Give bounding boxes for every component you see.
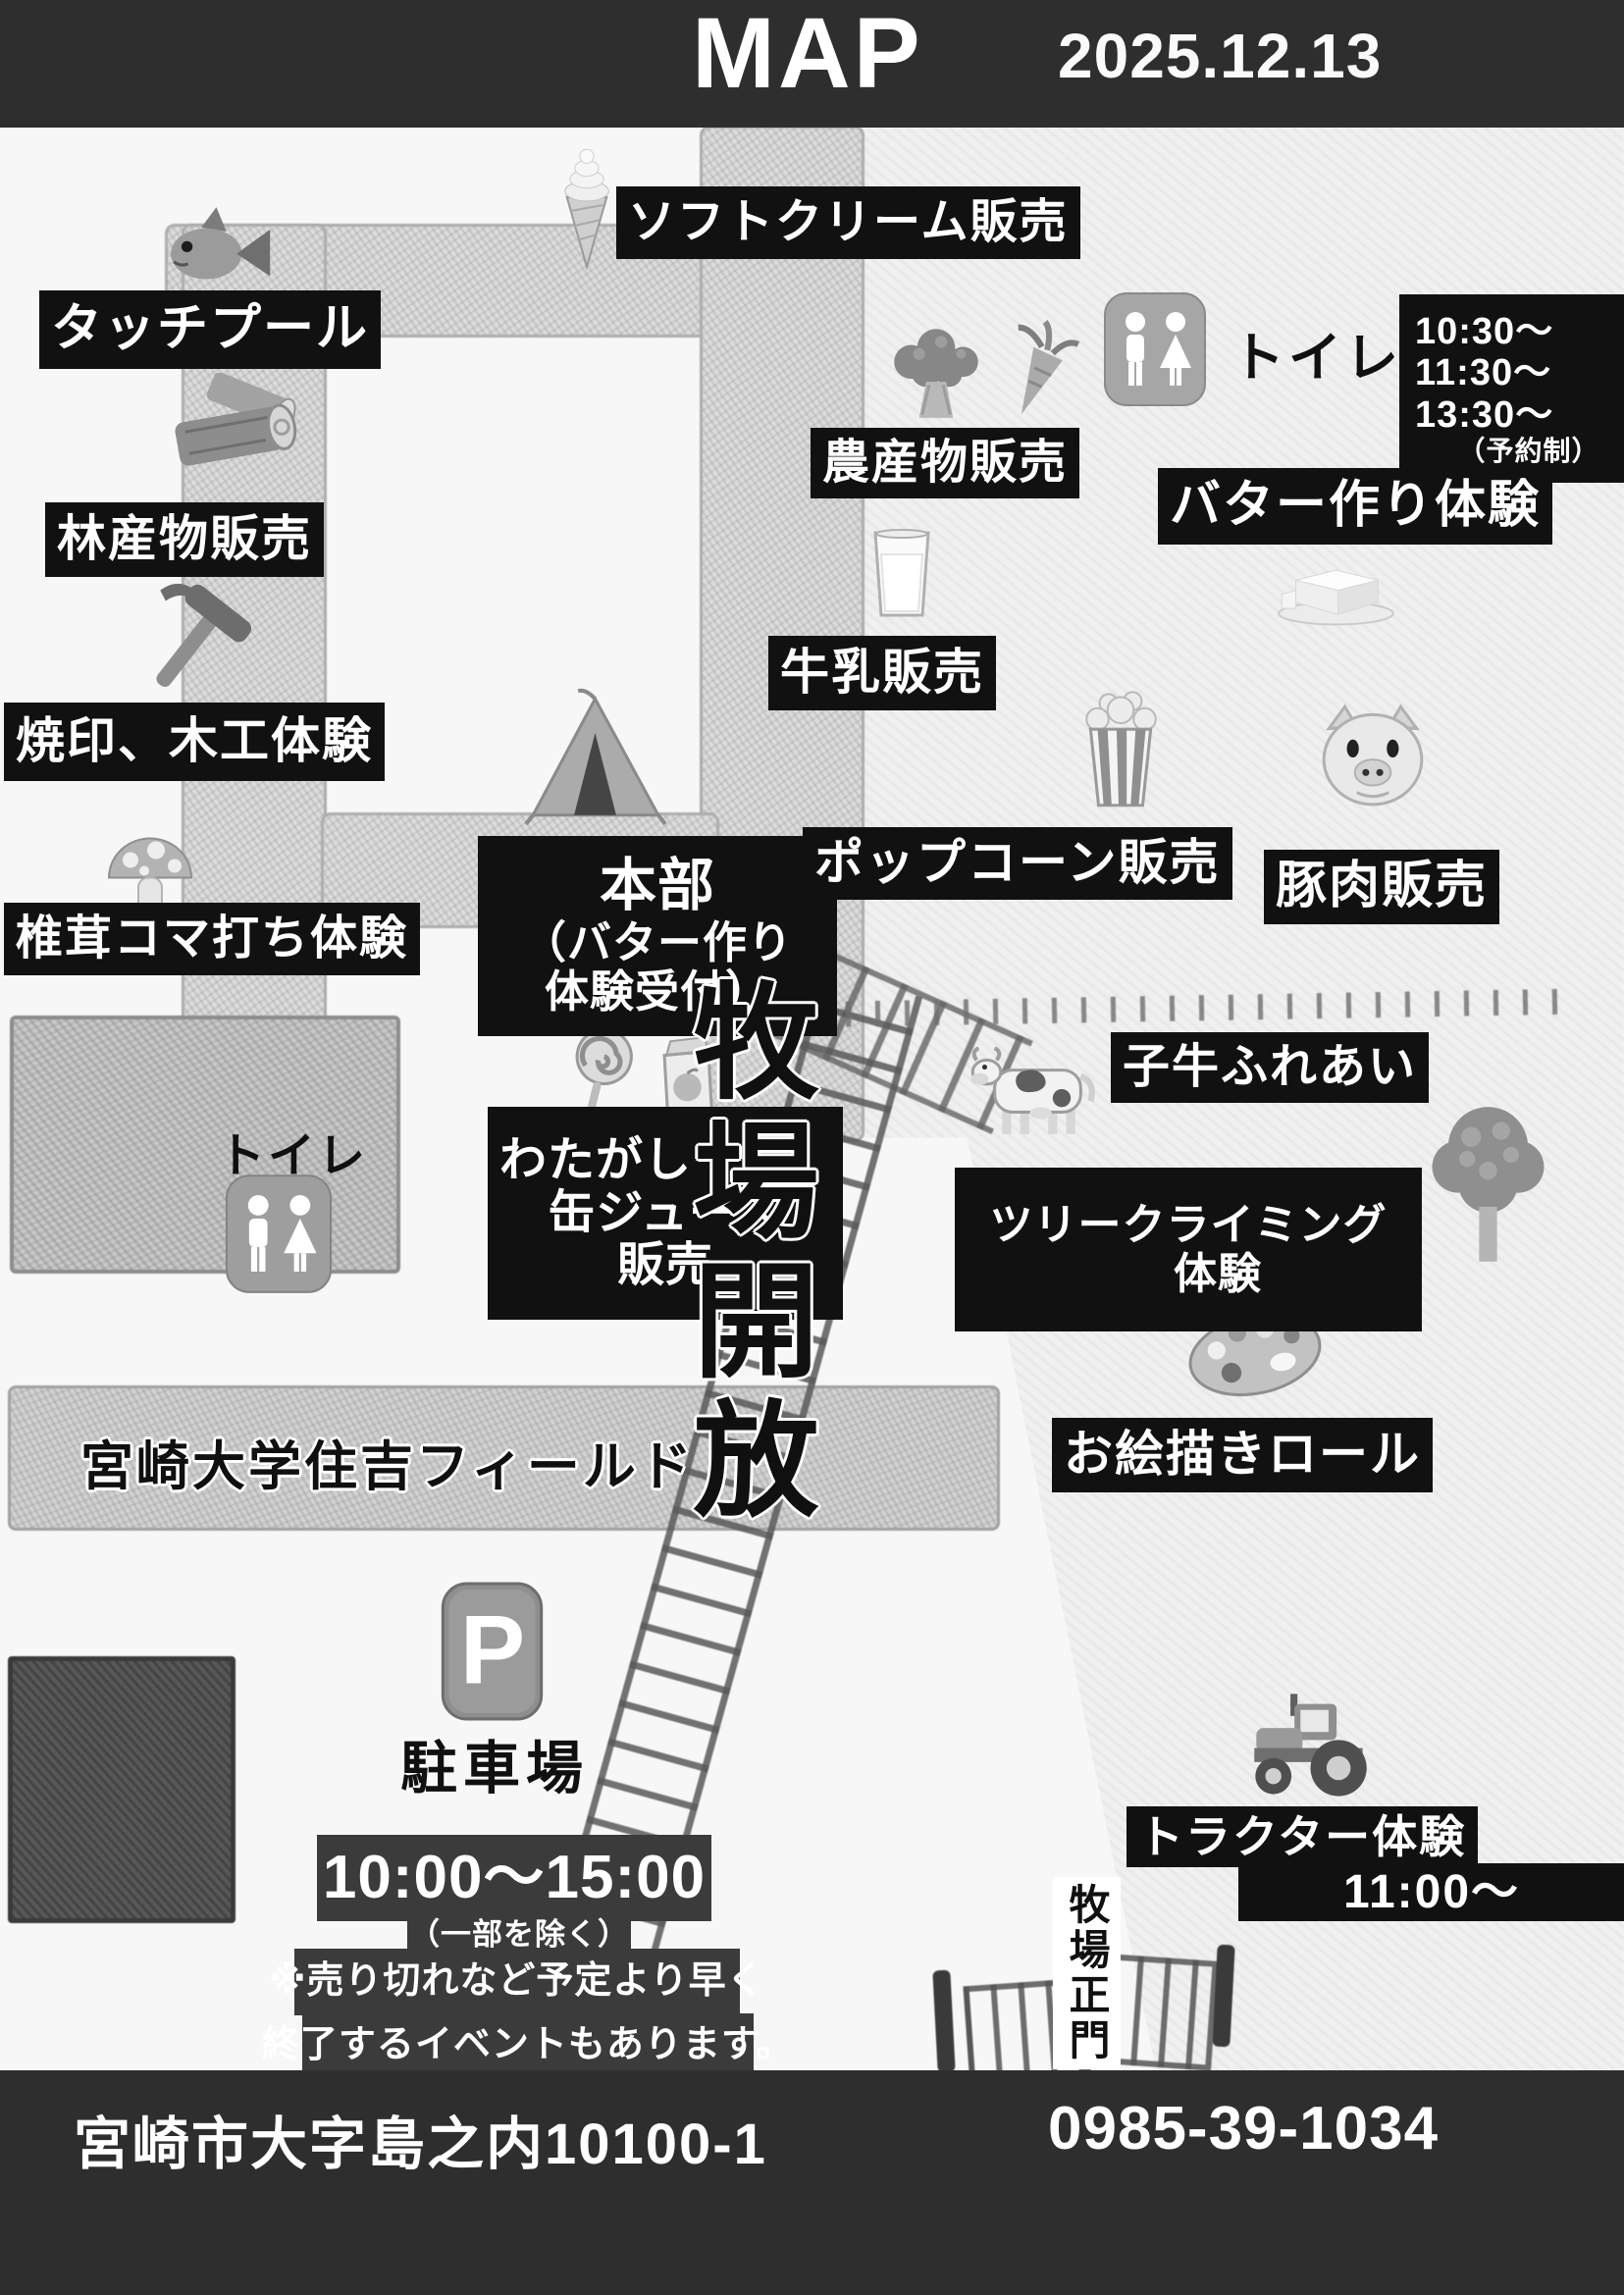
label-popcorn: ポップコーン販売 xyxy=(803,827,1232,900)
label-milk-sale: 牛乳販売 xyxy=(768,636,996,710)
label-pork: 豚肉販売 xyxy=(1264,850,1499,924)
popcorn-icon xyxy=(1073,677,1168,812)
restroom-icon-upper xyxy=(1101,287,1209,411)
building-block xyxy=(8,1656,236,1923)
pig-icon xyxy=(1313,697,1433,811)
label-shiitake: 椎茸コマ打ち体験 xyxy=(4,903,420,975)
wood-log-icon xyxy=(145,373,332,493)
event-date: 2025.12.13 xyxy=(1058,20,1382,92)
tree-climbing-box: ツリークライミング 体験 xyxy=(955,1168,1422,1331)
label-tractor: トラクター体験 xyxy=(1126,1806,1478,1867)
hours-note-text: （一部を除く） xyxy=(409,1918,629,1952)
tractor-icon xyxy=(1242,1690,1378,1802)
label-paint-roll-text: お絵描きロール xyxy=(1064,1427,1421,1484)
pasture-open-title: 牧場開放 xyxy=(670,976,817,1534)
butter-times-box: 10:30〜 11:30〜 13:30〜 （予約制） xyxy=(1399,294,1624,483)
page-title: MAP xyxy=(692,0,923,111)
hours-text: 10:00〜15:00 xyxy=(323,1845,706,1911)
label-calf: 子牛ふれあい xyxy=(1111,1032,1429,1103)
butter-time-note: （予約制） xyxy=(1457,436,1599,466)
fish-icon xyxy=(155,201,278,297)
hammer-icon xyxy=(113,574,278,711)
label-branding-woodwork-text: 焼印、木工体験 xyxy=(16,713,373,770)
hours-box: 10:00〜15:00 xyxy=(317,1835,711,1921)
hq-line2: （バター作り xyxy=(522,918,793,967)
label-agri-products: 農産物販売 xyxy=(811,428,1079,498)
label-paint-roll: お絵描きロール xyxy=(1052,1418,1433,1492)
label-calf-text: 子牛ふれあい xyxy=(1123,1040,1417,1094)
tent-icon xyxy=(523,685,668,830)
carrot-icon xyxy=(996,319,1086,425)
main-gate-label: 牧場正門 xyxy=(1053,1877,1121,2069)
butter-time-1: 10:30〜 xyxy=(1415,311,1553,353)
butter-icon xyxy=(1274,542,1399,628)
header-bar: MAP 2025.12.13 xyxy=(0,0,1624,128)
label-forest-products: 林産物販売 xyxy=(45,502,324,577)
label-popcorn-text: ポップコーン販売 xyxy=(814,835,1221,892)
footer-phone: 0985-39-1034 xyxy=(1048,2094,1439,2164)
label-touch-pool-text: タッチプール xyxy=(51,300,369,359)
notice-box-2: 終了するイベントもあります。 xyxy=(302,2013,754,2078)
footer-bar: 宮崎市大字島之内10100-1 0985-39-1034 xyxy=(0,2070,1624,2295)
cotton-candy-line1: わたがし xyxy=(499,1134,692,1187)
butter-time-2: 11:30〜 xyxy=(1415,352,1551,394)
notice-line1-text: ※売り切れなど予定より早く xyxy=(269,1961,764,2003)
label-shiitake-text: 椎茸コマ打ち体験 xyxy=(16,912,408,965)
tree-climbing-line1: ツリークライミング xyxy=(990,1201,1388,1249)
label-soft-cream-text: ソフトクリーム販売 xyxy=(628,195,1069,249)
label-branding-woodwork: 焼印、木工体験 xyxy=(4,703,385,781)
label-butter-experience-text: バター作り体験 xyxy=(1170,477,1541,536)
label-butter-experience: バター作り体験 xyxy=(1158,468,1552,545)
tree-icon xyxy=(1421,1097,1556,1272)
notice-box-1: ※売り切れなど予定より早く xyxy=(294,1949,740,2015)
label-soft-cream: ソフトクリーム販売 xyxy=(616,186,1080,259)
label-tractor-time: 11:00〜 xyxy=(1238,1863,1624,1921)
label-pork-text: 豚肉販売 xyxy=(1276,858,1488,916)
field-label: 宮崎大学住吉フィールド xyxy=(80,1423,695,1500)
label-milk-sale-text: 牛乳販売 xyxy=(780,645,984,702)
label-toilet-lower: トイレ xyxy=(218,1117,368,1185)
milk-glass-icon xyxy=(867,526,936,621)
label-forest-products-text: 林産物販売 xyxy=(57,511,312,568)
hq-line1: 本部 xyxy=(600,855,715,918)
label-tractor-text: トラクター体験 xyxy=(1138,1811,1466,1863)
restroom-icon-lower xyxy=(221,1170,337,1297)
parking-icon: P xyxy=(435,1578,550,1725)
label-agri-products-text: 農産物販売 xyxy=(822,436,1068,490)
event-map-poster: 宮崎大学住吉フィールド xyxy=(0,0,1624,2295)
cow-icon xyxy=(965,1040,1110,1140)
butter-time-3: 13:30〜 xyxy=(1415,394,1553,437)
footer-address: 宮崎市大字島之内10100-1 xyxy=(74,2098,767,2180)
label-toilet-upper: トイレ xyxy=(1231,314,1402,391)
tree-climbing-line2: 体験 xyxy=(1174,1250,1262,1298)
label-tractor-time-text: 11:00〜 xyxy=(1343,1865,1520,1919)
label-touch-pool: タッチプール xyxy=(39,290,381,369)
label-parking: 駐車場 xyxy=(400,1722,589,1804)
gate-post-left xyxy=(932,1970,955,2073)
notice-line2-text: 終了するイベントもあります。 xyxy=(262,2025,794,2066)
svg-text:P: P xyxy=(460,1595,525,1704)
broccoli-icon xyxy=(881,322,991,422)
